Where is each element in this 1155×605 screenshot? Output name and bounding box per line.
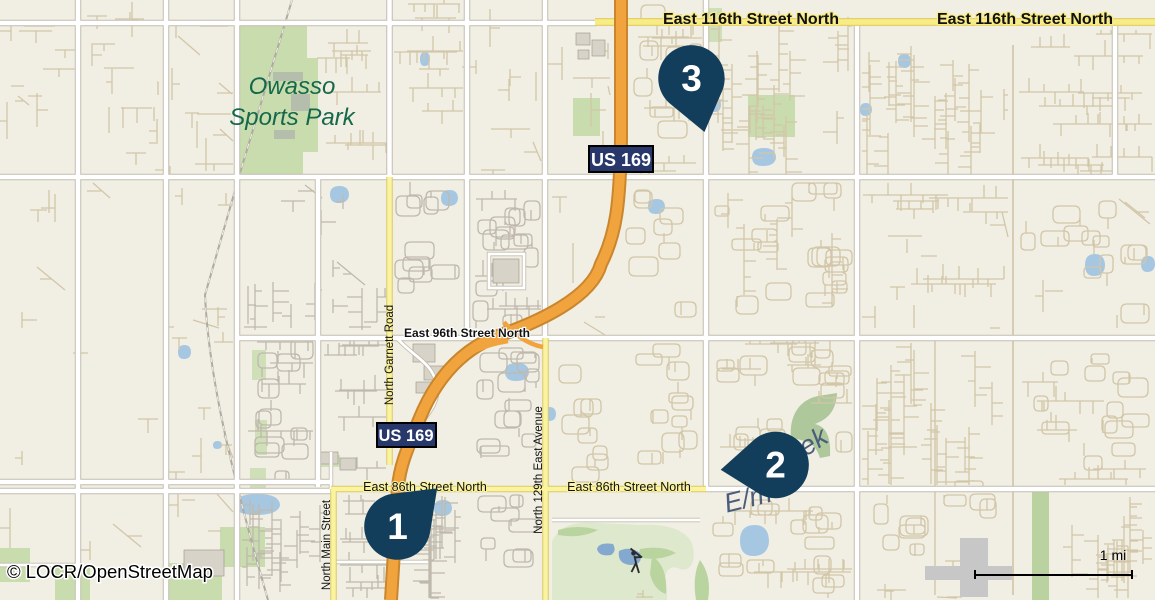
svg-text:North Main Street: North Main Street xyxy=(321,499,333,590)
svg-text:North Garnett Road: North Garnett Road xyxy=(384,305,396,405)
svg-text:1 mi: 1 mi xyxy=(1100,547,1126,563)
svg-text:East 116th Street North: East 116th Street North xyxy=(937,11,1113,28)
svg-text:Sports Park: Sports Park xyxy=(229,104,356,131)
svg-text:© LOCR/OpenStreetMap: © LOCR/OpenStreetMap xyxy=(7,561,213,582)
svg-text:3: 3 xyxy=(681,58,702,99)
svg-text:1: 1 xyxy=(387,506,408,547)
svg-text:Owasso: Owasso xyxy=(249,73,336,100)
svg-text:East 116th Street North: East 116th Street North xyxy=(663,11,839,28)
svg-text:East 86th Street North: East 86th Street North xyxy=(567,480,691,494)
svg-text:2: 2 xyxy=(765,445,786,486)
svg-text:East 96th Street North: East 96th Street North xyxy=(404,326,530,340)
svg-text:US 169: US 169 xyxy=(378,427,433,445)
svg-text:US 169: US 169 xyxy=(591,150,651,170)
svg-text:North 129th East Avenue: North 129th East Avenue xyxy=(533,406,545,534)
